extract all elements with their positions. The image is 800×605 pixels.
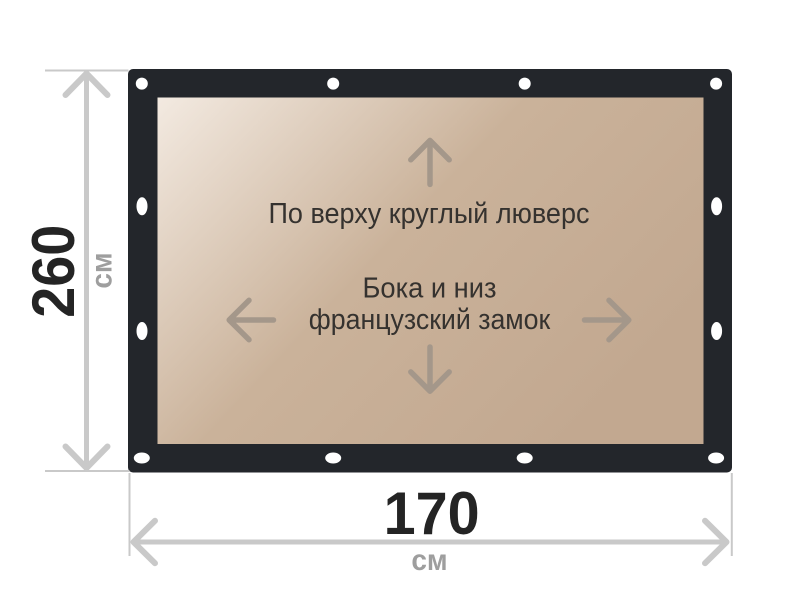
svg-text:Бока и низ: Бока и низ	[363, 273, 497, 305]
svg-text:см: см	[86, 252, 119, 288]
svg-text:французский замок: французский замок	[309, 304, 551, 336]
svg-text:По верху круглый люверс: По верху круглый люверс	[269, 198, 590, 230]
svg-text:см: см	[411, 544, 447, 577]
svg-text:170: 170	[384, 480, 480, 547]
svg-text:260: 260	[20, 225, 87, 318]
